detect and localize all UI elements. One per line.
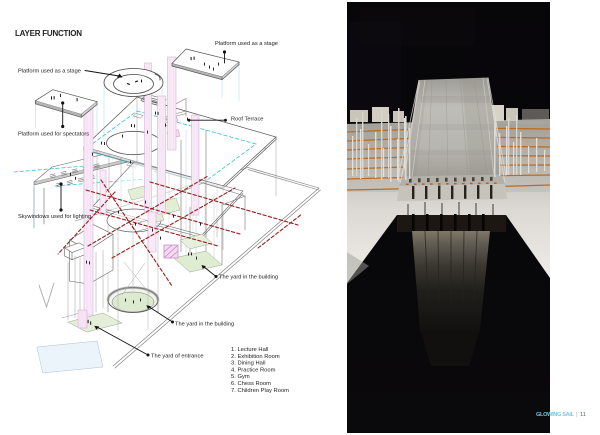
- svg-text:11: 11: [580, 412, 586, 418]
- svg-text:Skywindows used for lighting: Skywindows used for lighting: [18, 214, 91, 220]
- svg-text:Platform used as a stage: Platform used as a stage: [215, 41, 278, 47]
- svg-text:Platform used as a stage: Platform used as a stage: [18, 69, 81, 75]
- svg-text:The yard of entrance: The yard of entrance: [151, 354, 203, 360]
- svg-text:2. Exhibition Room: 2. Exhibition Room: [231, 354, 280, 360]
- svg-text:5. Gym: 5. Gym: [231, 374, 250, 380]
- svg-text:The yard in the building: The yard in the building: [175, 322, 234, 328]
- svg-text:LAYER FUNCTION: LAYER FUNCTION: [15, 29, 82, 38]
- svg-text:The yard in the building: The yard in the building: [219, 275, 278, 281]
- svg-text:1. Lecture Hall: 1. Lecture Hall: [231, 347, 268, 353]
- svg-text:Roof Terrace: Roof Terrace: [231, 117, 263, 123]
- svg-text:4. Practice Room: 4. Practice Room: [231, 367, 276, 373]
- svg-text:6. Chess Room: 6. Chess Room: [231, 381, 271, 387]
- svg-text:|: |: [576, 412, 577, 418]
- svg-text:7. Children Play Room: 7. Children Play Room: [231, 388, 289, 394]
- svg-text:GLOWING SAIL: GLOWING SAIL: [536, 412, 575, 418]
- svg-text:Platform used for spectators: Platform used for spectators: [18, 132, 89, 138]
- svg-text:3. Dining Hall: 3. Dining Hall: [231, 361, 265, 367]
